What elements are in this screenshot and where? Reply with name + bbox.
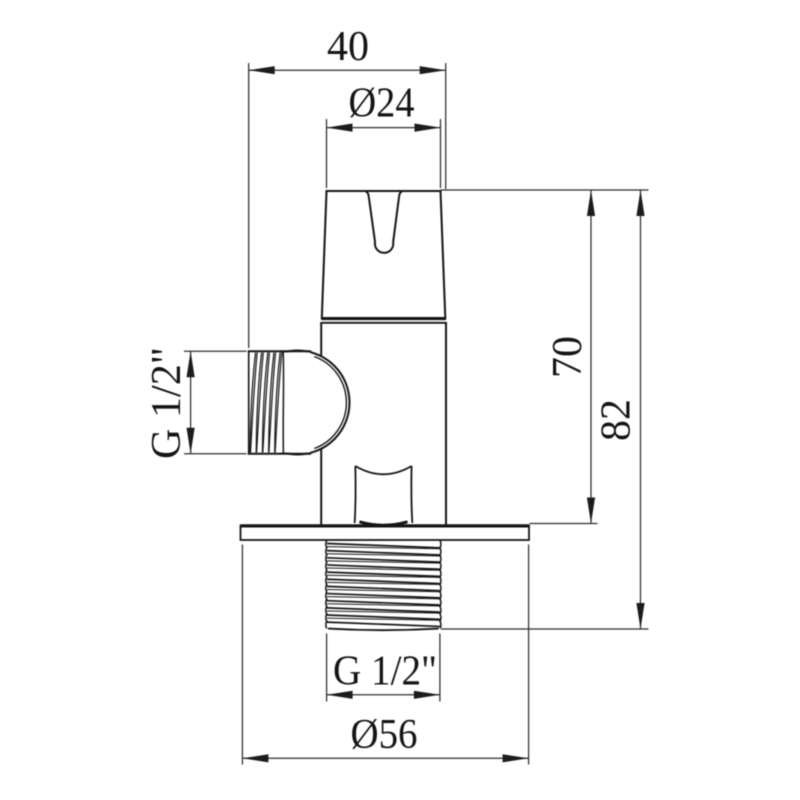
svg-text:G 1/2": G 1/2": [144, 347, 190, 459]
svg-text:Ø56: Ø56: [351, 712, 418, 758]
svg-text:40: 40: [327, 24, 369, 70]
svg-text:82: 82: [594, 399, 640, 441]
svg-text:G 1/2": G 1/2": [333, 649, 437, 695]
svg-text:Ø24: Ø24: [349, 81, 415, 127]
svg-text:70: 70: [545, 336, 591, 378]
